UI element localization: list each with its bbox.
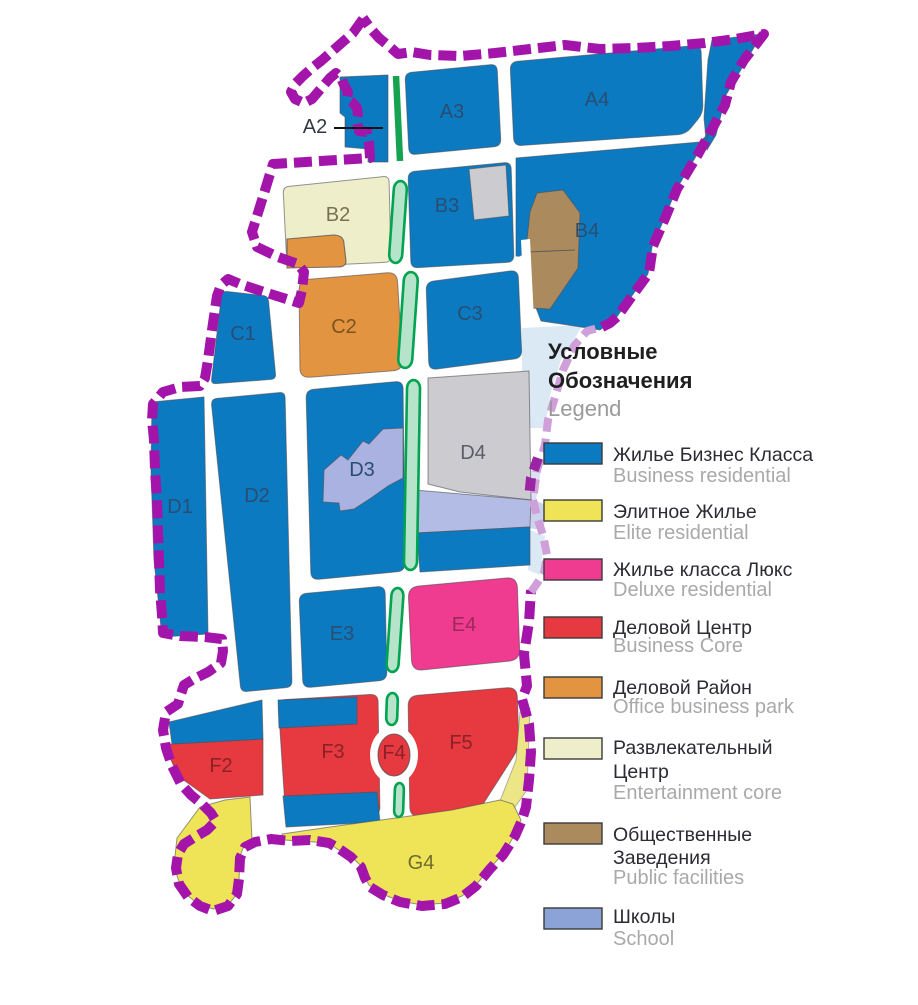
svg-text:Жилье класса Люкс: Жилье класса Люкс [613, 559, 793, 581]
svg-text:Общественные: Общественные [613, 824, 752, 846]
svg-text:E4: E4 [452, 614, 476, 636]
svg-text:A4: A4 [585, 89, 609, 111]
svg-text:Legend: Legend [548, 396, 621, 421]
svg-text:C3: C3 [457, 303, 483, 325]
svg-text:Entertainment core: Entertainment core [613, 782, 782, 804]
svg-text:Обозначения: Обозначения [548, 368, 692, 393]
svg-text:Центр: Центр [613, 761, 669, 783]
svg-text:Заведения: Заведения [613, 847, 711, 869]
svg-text:Элитное Жилье: Элитное Жилье [613, 501, 757, 523]
svg-text:C2: C2 [331, 316, 357, 338]
svg-text:Public facilities: Public facilities [613, 867, 744, 889]
svg-text:Deluxe residential: Deluxe residential [613, 579, 772, 601]
svg-text:School: School [613, 928, 674, 950]
svg-text:D2: D2 [244, 485, 270, 507]
svg-text:Business Core: Business Core [613, 635, 743, 657]
svg-text:Развлекательный: Развлекательный [613, 737, 773, 759]
svg-text:D1: D1 [167, 496, 193, 518]
svg-text:G4: G4 [408, 852, 435, 874]
svg-text:Жилье Бизнес Класса: Жилье Бизнес Класса [613, 444, 813, 466]
svg-text:Школы: Школы [613, 906, 675, 928]
svg-text:Elite residential: Elite residential [613, 522, 749, 544]
svg-text:B2: B2 [326, 204, 350, 226]
svg-text:Business residential: Business residential [613, 465, 791, 487]
svg-text:D3: D3 [349, 459, 375, 481]
svg-text:A2: A2 [303, 116, 327, 138]
svg-text:B3: B3 [435, 195, 459, 217]
svg-text:F5: F5 [449, 732, 472, 754]
svg-text:A3: A3 [440, 101, 464, 123]
svg-text:Условные: Условные [548, 339, 658, 364]
svg-text:D4: D4 [460, 442, 486, 464]
svg-text:Office business park: Office business park [613, 696, 795, 718]
svg-text:B4: B4 [575, 220, 599, 242]
svg-text:E3: E3 [330, 623, 354, 645]
svg-text:C1: C1 [230, 323, 256, 345]
svg-text:F4: F4 [382, 742, 405, 764]
svg-text:F3: F3 [321, 741, 344, 763]
svg-text:F2: F2 [209, 755, 232, 777]
